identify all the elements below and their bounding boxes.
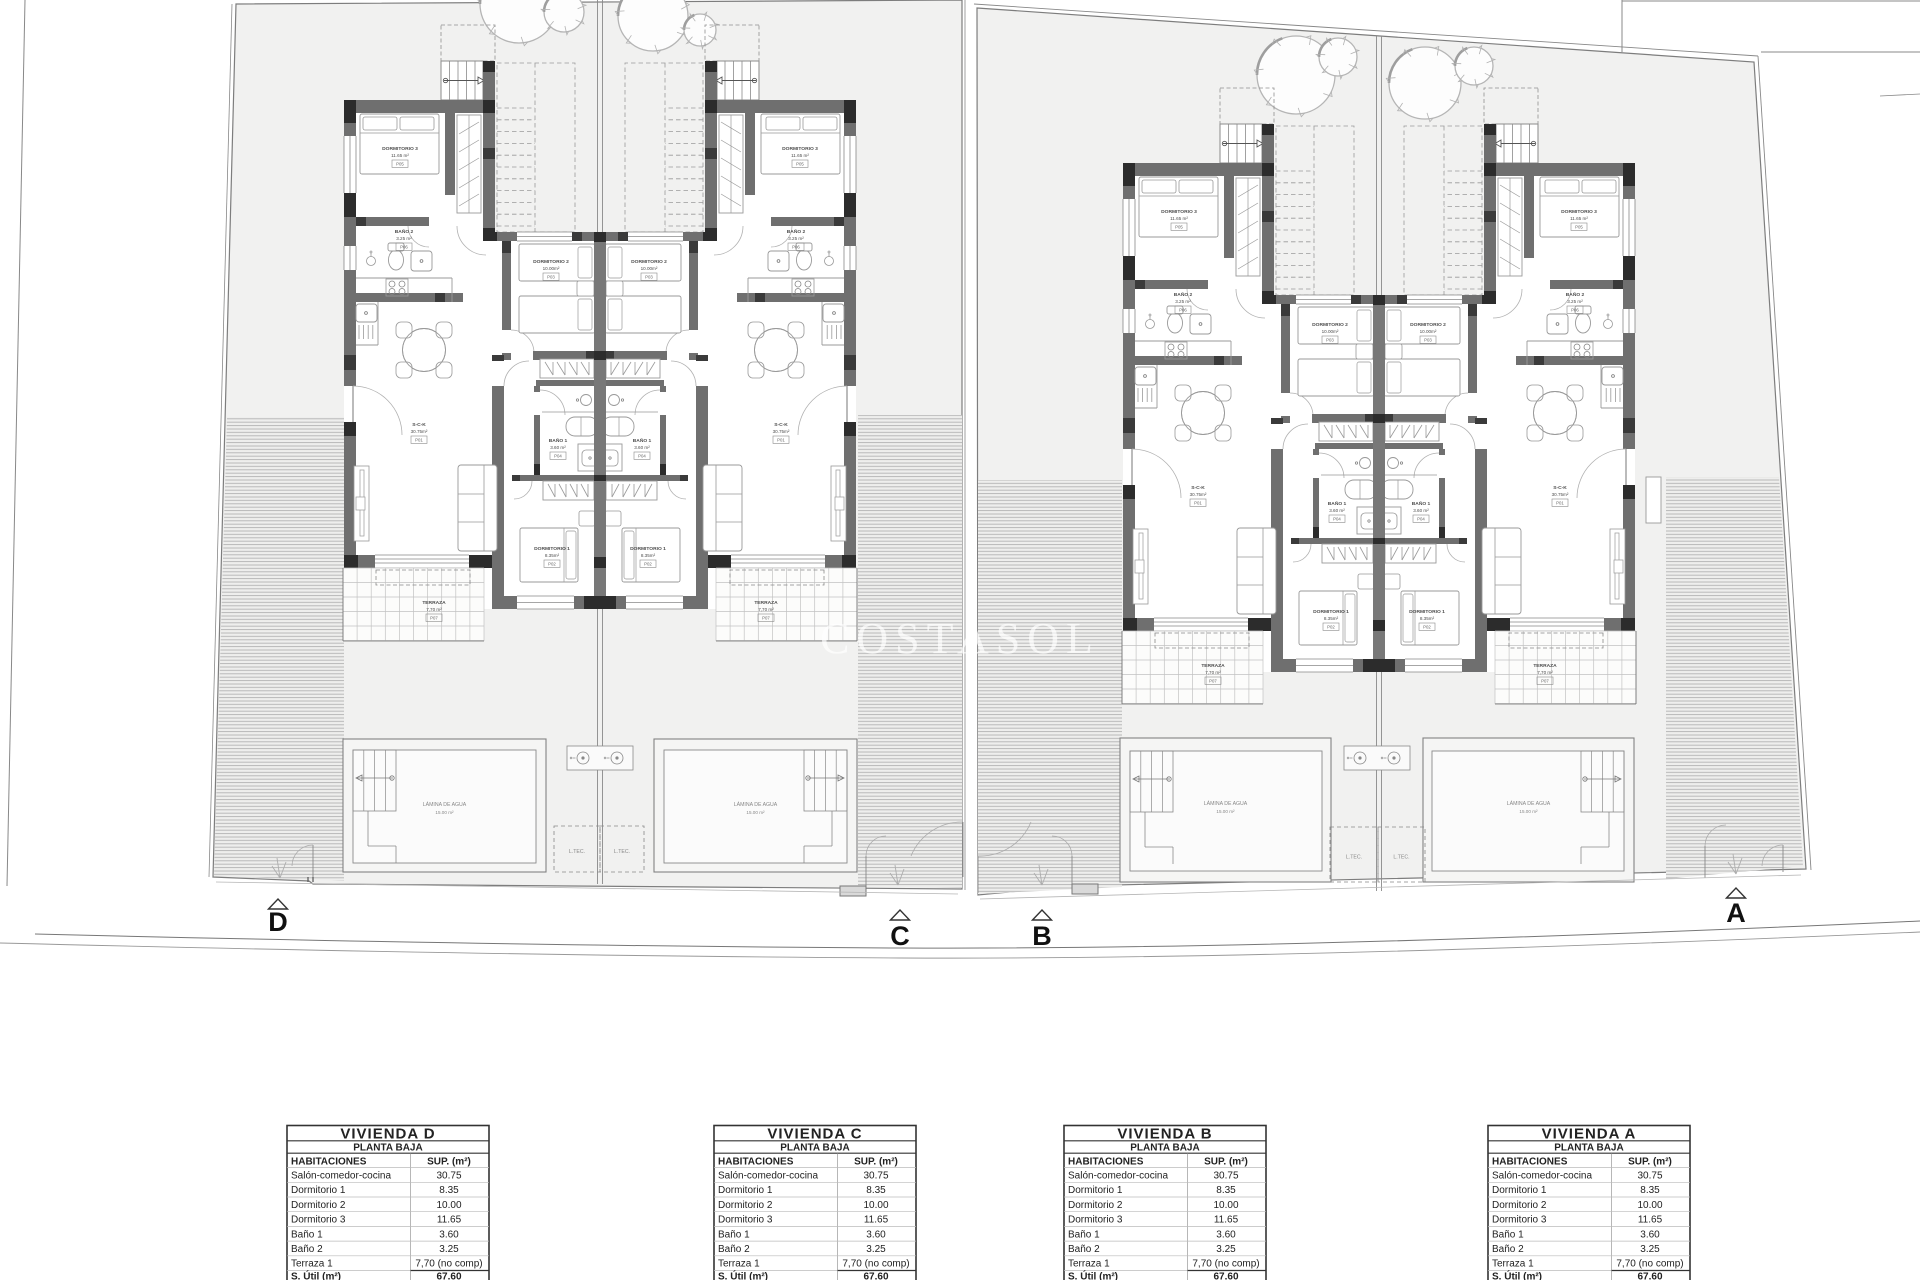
svg-text:15.00 m²: 15.00 m²: [1519, 809, 1538, 814]
svg-text:3.25: 3.25: [439, 1244, 459, 1255]
svg-text:11.65 m²: 11.65 m²: [391, 153, 409, 158]
svg-text:Baño 2: Baño 2: [291, 1244, 323, 1255]
svg-text:3.60: 3.60: [1216, 1229, 1236, 1240]
svg-text:8.35: 8.35: [1640, 1185, 1660, 1196]
svg-text:Dormitorio 2: Dormitorio 2: [1068, 1200, 1123, 1211]
svg-text:DORMITORIO 3: DORMITORIO 3: [382, 146, 418, 152]
svg-text:P02: P02: [644, 562, 652, 567]
svg-text:30.75: 30.75: [863, 1171, 888, 1182]
svg-text:S-C-K: S-C-K: [412, 422, 426, 428]
svg-text:Dormitorio 2: Dormitorio 2: [291, 1200, 346, 1211]
svg-text:P03: P03: [547, 275, 555, 280]
svg-text:8.35m²: 8.35m²: [545, 553, 560, 558]
svg-text:8.35m²: 8.35m²: [1420, 616, 1435, 621]
svg-text:D: D: [268, 907, 288, 937]
svg-text:10.00m²: 10.00m²: [1420, 329, 1437, 334]
svg-text:3.25: 3.25: [866, 1244, 886, 1255]
svg-text:S. Útil (m²): S. Útil (m²): [1492, 1270, 1542, 1280]
svg-text:30.75m²: 30.75m²: [773, 429, 790, 434]
svg-text:Baño 1: Baño 1: [718, 1229, 750, 1240]
svg-text:10.00: 10.00: [1213, 1200, 1238, 1211]
svg-text:Salón-comedor-cocina: Salón-comedor-cocina: [291, 1171, 391, 1182]
svg-text:TERRAZA: TERRAZA: [422, 600, 446, 606]
svg-text:Baño 1: Baño 1: [1492, 1229, 1524, 1240]
svg-text:DORMITORIO 2: DORMITORIO 2: [631, 259, 667, 265]
svg-text:30.75m²: 30.75m²: [1190, 492, 1207, 497]
svg-text:DORMITORIO 1: DORMITORIO 1: [630, 546, 666, 552]
svg-text:3.25 m²: 3.25 m²: [396, 236, 412, 241]
svg-text:3.25 m²: 3.25 m²: [1175, 299, 1191, 304]
svg-text:Baño 1: Baño 1: [291, 1229, 323, 1240]
svg-text:Baño 2: Baño 2: [718, 1244, 750, 1255]
svg-text:11.65: 11.65: [437, 1215, 462, 1226]
svg-text:10.00: 10.00: [436, 1200, 461, 1211]
svg-text:7,70 m²: 7,70 m²: [1205, 670, 1221, 675]
svg-text:HABITACIONES: HABITACIONES: [1492, 1157, 1568, 1168]
svg-text:Dormitorio 3: Dormitorio 3: [1068, 1215, 1123, 1226]
svg-text:15.00 m²: 15.00 m²: [435, 810, 454, 815]
svg-text:Dormitorio 1: Dormitorio 1: [291, 1185, 346, 1196]
svg-text:VIVIENDA C: VIVIENDA C: [767, 1126, 862, 1143]
svg-text:8.35m²: 8.35m²: [1324, 616, 1339, 621]
svg-text:S-C-K: S-C-K: [1553, 485, 1567, 491]
svg-text:DORMITORIO 1: DORMITORIO 1: [534, 546, 570, 552]
svg-text:P01: P01: [1194, 501, 1202, 506]
svg-text:Salón-comedor-cocina: Salón-comedor-cocina: [718, 1171, 818, 1182]
svg-text:15.00 m²: 15.00 m²: [1216, 809, 1235, 814]
svg-text:S. Útil (m²): S. Útil (m²): [291, 1270, 341, 1280]
svg-text:TERRAZA: TERRAZA: [754, 600, 778, 606]
svg-text:P04: P04: [638, 454, 646, 459]
svg-text:DORMITORIO 1: DORMITORIO 1: [1313, 609, 1349, 615]
svg-text:P02: P02: [548, 562, 556, 567]
svg-text:3.25: 3.25: [1640, 1244, 1660, 1255]
svg-text:Baño 1: Baño 1: [1068, 1229, 1100, 1240]
svg-text:HABITACIONES: HABITACIONES: [1068, 1157, 1144, 1168]
svg-text:LÁMINA DE AGUA: LÁMINA DE AGUA: [1204, 800, 1248, 807]
svg-text:Dormitorio 2: Dormitorio 2: [1492, 1200, 1547, 1211]
svg-text:P06: P06: [792, 245, 800, 250]
svg-text:7,70 (no comp): 7,70 (no comp): [1192, 1259, 1259, 1270]
svg-text:BAÑO 2: BAÑO 2: [787, 228, 806, 235]
svg-text:B: B: [1032, 921, 1052, 951]
svg-text:SUP. (m²): SUP. (m²): [427, 1157, 471, 1168]
svg-text:30.75: 30.75: [436, 1171, 461, 1182]
svg-text:67.60: 67.60: [436, 1272, 461, 1280]
svg-text:67.60: 67.60: [1213, 1272, 1238, 1280]
svg-text:Dormitorio 1: Dormitorio 1: [718, 1185, 773, 1196]
svg-text:Salón-comedor-cocina: Salón-comedor-cocina: [1068, 1171, 1168, 1182]
svg-text:P01: P01: [1556, 501, 1564, 506]
svg-text:Dormitorio 3: Dormitorio 3: [291, 1215, 346, 1226]
svg-text:8.35m²: 8.35m²: [641, 553, 656, 558]
svg-text:11.65 m²: 11.65 m²: [791, 153, 809, 158]
svg-text:10.00m²: 10.00m²: [543, 266, 560, 271]
svg-text:P01: P01: [415, 438, 423, 443]
svg-text:Baño 2: Baño 2: [1068, 1244, 1100, 1255]
svg-text:DORMITORIO 3: DORMITORIO 3: [1161, 209, 1197, 215]
svg-text:8.35: 8.35: [866, 1185, 886, 1196]
svg-text:L.TEC.: L.TEC.: [569, 849, 585, 855]
svg-text:30.75: 30.75: [1213, 1171, 1238, 1182]
svg-text:30.75: 30.75: [1637, 1171, 1662, 1182]
svg-text:3.60: 3.60: [866, 1229, 886, 1240]
svg-text:P07: P07: [430, 616, 438, 621]
svg-text:Terraza 1: Terraza 1: [718, 1259, 760, 1270]
svg-text:10.00: 10.00: [863, 1200, 888, 1211]
svg-text:3.60: 3.60: [1640, 1229, 1660, 1240]
svg-text:P06: P06: [1179, 308, 1187, 313]
svg-text:P04: P04: [1417, 517, 1425, 522]
svg-text:11.65 m²: 11.65 m²: [1170, 216, 1188, 221]
svg-text:Terraza 1: Terraza 1: [1068, 1259, 1110, 1270]
svg-text:30.75m²: 30.75m²: [411, 429, 428, 434]
svg-text:P04: P04: [1333, 517, 1341, 522]
svg-text:7,70 (no comp): 7,70 (no comp): [842, 1259, 909, 1270]
svg-text:P03: P03: [645, 275, 653, 280]
svg-text:Dormitorio 1: Dormitorio 1: [1492, 1185, 1547, 1196]
svg-text:Terraza 1: Terraza 1: [1492, 1259, 1534, 1270]
svg-text:7,70 (no comp): 7,70 (no comp): [415, 1259, 482, 1270]
svg-text:P01: P01: [777, 438, 785, 443]
svg-text:PLANTA BAJA: PLANTA BAJA: [780, 1143, 849, 1154]
svg-text:SUP. (m²): SUP. (m²): [854, 1157, 898, 1168]
svg-text:P02: P02: [1327, 625, 1335, 630]
svg-text:P04: P04: [554, 454, 562, 459]
svg-text:DORMITORIO 3: DORMITORIO 3: [1561, 209, 1597, 215]
svg-text:S-C-K: S-C-K: [774, 422, 788, 428]
svg-text:10.00m²: 10.00m²: [1322, 329, 1339, 334]
svg-text:P03: P03: [1424, 338, 1432, 343]
svg-text:HABITACIONES: HABITACIONES: [718, 1157, 794, 1168]
svg-text:L.TEC.: L.TEC.: [1393, 855, 1409, 861]
svg-text:P05: P05: [1175, 225, 1183, 230]
svg-text:Dormitorio 3: Dormitorio 3: [718, 1215, 773, 1226]
svg-text:P03: P03: [1326, 338, 1334, 343]
svg-text:DORMITORIO 3: DORMITORIO 3: [782, 146, 818, 152]
svg-text:S. Útil (m²): S. Útil (m²): [1068, 1270, 1118, 1280]
svg-text:P07: P07: [1209, 679, 1217, 684]
svg-text:BAÑO 1: BAÑO 1: [1328, 500, 1347, 507]
svg-text:8.35: 8.35: [1216, 1185, 1236, 1196]
svg-text:SUP. (m²): SUP. (m²): [1204, 1157, 1248, 1168]
svg-text:SUP. (m²): SUP. (m²): [1628, 1157, 1672, 1168]
svg-text:S-C-K: S-C-K: [1191, 485, 1205, 491]
svg-text:S. Útil (m²): S. Útil (m²): [718, 1270, 768, 1280]
svg-text:P06: P06: [400, 245, 408, 250]
svg-text:P05: P05: [396, 162, 404, 167]
svg-text:7,70 m²: 7,70 m²: [426, 607, 442, 612]
svg-text:3.60 m²: 3.60 m²: [550, 445, 566, 450]
svg-text:LÁMINA DE AGUA: LÁMINA DE AGUA: [423, 801, 467, 808]
svg-text:67.60: 67.60: [1637, 1272, 1662, 1280]
svg-text:11.65: 11.65: [1638, 1215, 1663, 1226]
svg-text:P07: P07: [1541, 679, 1549, 684]
svg-text:P05: P05: [796, 162, 804, 167]
svg-text:C: C: [890, 921, 910, 951]
svg-text:3.25: 3.25: [1216, 1244, 1236, 1255]
svg-text:LÁMINA DE AGUA: LÁMINA DE AGUA: [734, 801, 778, 808]
svg-text:Dormitorio 1: Dormitorio 1: [1068, 1185, 1123, 1196]
svg-text:Terraza 1: Terraza 1: [291, 1259, 333, 1270]
svg-text:L.TEC.: L.TEC.: [614, 849, 630, 855]
svg-text:Salón-comedor-cocina: Salón-comedor-cocina: [1492, 1171, 1592, 1182]
svg-text:67.60: 67.60: [863, 1272, 888, 1280]
svg-text:DORMITORIO 1: DORMITORIO 1: [1409, 609, 1445, 615]
svg-text:DORMITORIO 2: DORMITORIO 2: [533, 259, 569, 265]
svg-text:P06: P06: [1571, 308, 1579, 313]
svg-text:11.65: 11.65: [1214, 1215, 1239, 1226]
svg-text:7,70 m²: 7,70 m²: [758, 607, 774, 612]
svg-text:PLANTA BAJA: PLANTA BAJA: [1130, 1143, 1199, 1154]
svg-text:3.60: 3.60: [439, 1229, 459, 1240]
svg-text:11.65: 11.65: [864, 1215, 889, 1226]
svg-text:BAÑO 1: BAÑO 1: [549, 437, 568, 444]
svg-text:15.00 m²: 15.00 m²: [746, 810, 765, 815]
svg-text:TERRAZA: TERRAZA: [1201, 663, 1225, 669]
svg-text:A: A: [1726, 898, 1746, 928]
svg-text:3.60 m²: 3.60 m²: [634, 445, 650, 450]
svg-text:BAÑO 1: BAÑO 1: [1412, 500, 1431, 507]
svg-text:3.25 m²: 3.25 m²: [788, 236, 804, 241]
svg-text:VIVIENDA D: VIVIENDA D: [340, 1126, 435, 1143]
svg-text:P05: P05: [1575, 225, 1583, 230]
svg-text:3.60 m²: 3.60 m²: [1329, 508, 1345, 513]
svg-text:7,70 m²: 7,70 m²: [1537, 670, 1553, 675]
svg-text:Baño 2: Baño 2: [1492, 1244, 1524, 1255]
svg-text:BAÑO 2: BAÑO 2: [1174, 291, 1193, 298]
svg-text:BAÑO 1: BAÑO 1: [633, 437, 652, 444]
svg-text:DORMITORIO 2: DORMITORIO 2: [1312, 322, 1348, 328]
svg-text:HABITACIONES: HABITACIONES: [291, 1157, 367, 1168]
svg-text:COSTASOL: COSTASOL: [820, 614, 1100, 663]
svg-text:TERRAZA: TERRAZA: [1533, 663, 1557, 669]
svg-text:L.TEC.: L.TEC.: [1346, 855, 1362, 861]
svg-text:10.00m²: 10.00m²: [641, 266, 658, 271]
svg-text:11.65 m²: 11.65 m²: [1570, 216, 1588, 221]
svg-text:BAÑO 2: BAÑO 2: [395, 228, 414, 235]
svg-text:LÁMINA DE AGUA: LÁMINA DE AGUA: [1507, 800, 1551, 807]
svg-text:8.35: 8.35: [439, 1185, 459, 1196]
svg-text:30.75m²: 30.75m²: [1552, 492, 1569, 497]
svg-text:10.00: 10.00: [1637, 1200, 1662, 1211]
svg-text:P07: P07: [762, 616, 770, 621]
svg-text:P02: P02: [1423, 625, 1431, 630]
svg-text:3.60 m²: 3.60 m²: [1413, 508, 1429, 513]
svg-text:BAÑO 2: BAÑO 2: [1566, 291, 1585, 298]
svg-text:3.25 m²: 3.25 m²: [1567, 299, 1583, 304]
svg-text:VIVIENDA A: VIVIENDA A: [1542, 1126, 1637, 1143]
svg-text:Dormitorio 3: Dormitorio 3: [1492, 1215, 1547, 1226]
svg-text:Dormitorio 2: Dormitorio 2: [718, 1200, 773, 1211]
svg-text:PLANTA BAJA: PLANTA BAJA: [1554, 1143, 1623, 1154]
svg-text:VIVIENDA B: VIVIENDA B: [1117, 1126, 1212, 1143]
svg-text:7,70 (no comp): 7,70 (no comp): [1616, 1259, 1683, 1270]
svg-text:PLANTA BAJA: PLANTA BAJA: [353, 1143, 422, 1154]
svg-text:DORMITORIO 2: DORMITORIO 2: [1410, 322, 1446, 328]
